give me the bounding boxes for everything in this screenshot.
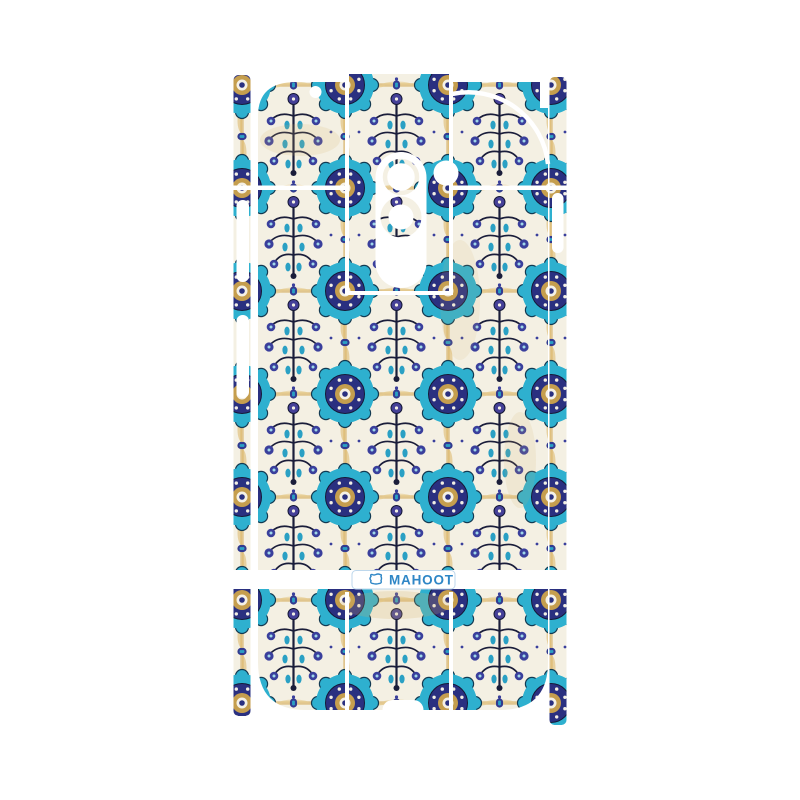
right-top-gap-cut xyxy=(541,82,549,108)
left-button-slot-upper xyxy=(237,200,250,282)
camera-cutout xyxy=(376,152,427,288)
product-photo-canvas: MAHOOT xyxy=(0,0,800,800)
phone-skin-illustration: MAHOOT xyxy=(0,0,800,800)
camera-piece-left-cut xyxy=(345,74,349,294)
camera-piece-bottom-cut xyxy=(345,291,453,295)
brand-wordmark: MAHOOT xyxy=(389,573,454,588)
brand-band: MAHOOT xyxy=(233,570,568,589)
upper-horizontal-cut-left xyxy=(233,186,347,191)
bottom-flap-left-cut xyxy=(345,592,349,712)
upper-horizontal-cut-right xyxy=(451,186,568,191)
right-side-strip-piece xyxy=(550,77,567,725)
flash-hole-cutout xyxy=(434,161,459,186)
bottom-flap-right-cut xyxy=(449,592,453,712)
sensor-hole-cutout xyxy=(310,86,322,98)
right-button-slot xyxy=(552,193,564,253)
bottom-port-notch xyxy=(383,700,424,720)
left-button-slot-lower xyxy=(237,315,250,398)
left-top-gap-cut xyxy=(251,75,258,188)
phone-skin: MAHOOT xyxy=(233,74,568,725)
